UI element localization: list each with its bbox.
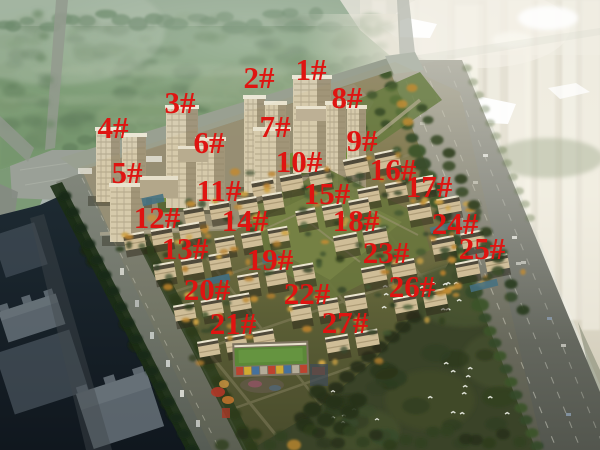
svg-text:4#: 4# — [98, 110, 130, 145]
svg-text:19#: 19# — [247, 242, 294, 277]
svg-text:26#: 26# — [389, 269, 436, 304]
svg-text:25#: 25# — [459, 231, 506, 266]
svg-text:18#: 18# — [333, 203, 380, 238]
svg-text:5#: 5# — [112, 155, 144, 190]
svg-text:20#: 20# — [184, 272, 231, 307]
svg-text:7#: 7# — [260, 109, 292, 144]
svg-text:27#: 27# — [322, 305, 369, 340]
svg-text:23#: 23# — [363, 235, 410, 270]
svg-text:2#: 2# — [244, 60, 276, 95]
svg-text:14#: 14# — [222, 203, 269, 238]
svg-text:17#: 17# — [406, 169, 453, 204]
svg-text:8#: 8# — [332, 80, 364, 115]
svg-text:12#: 12# — [134, 200, 181, 235]
svg-text:1#: 1# — [296, 52, 328, 87]
svg-text:6#: 6# — [194, 125, 226, 160]
svg-text:13#: 13# — [162, 231, 209, 266]
svg-text:10#: 10# — [276, 144, 323, 179]
svg-text:21#: 21# — [210, 306, 257, 341]
svg-text:3#: 3# — [165, 85, 197, 120]
